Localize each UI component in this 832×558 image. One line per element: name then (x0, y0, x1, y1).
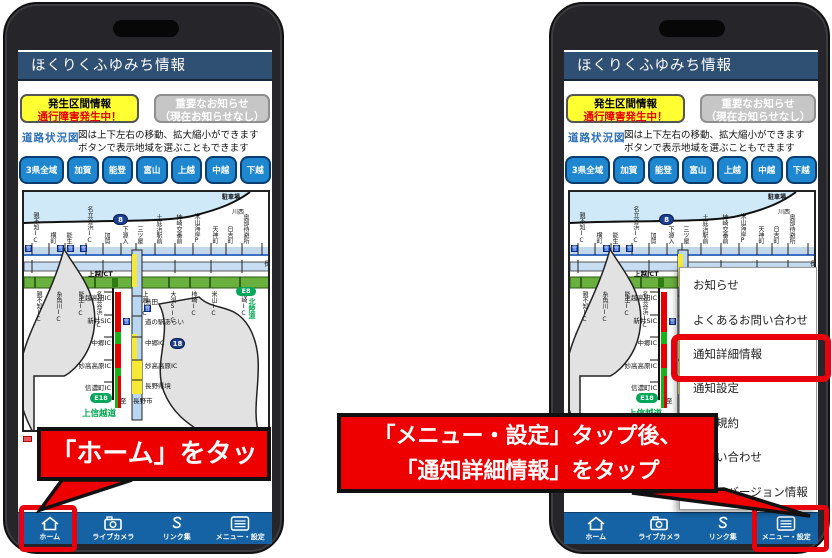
map-station-label: 名立谷浜IC (632, 206, 638, 244)
chain-control-icon: 雪 (613, 245, 620, 252)
map-station-label: 米山海岸P (739, 213, 745, 244)
region-button[interactable]: 上越 (171, 156, 202, 184)
map-station-label: 日吉町 (226, 226, 232, 244)
nav-home-label: ホーム (585, 532, 606, 542)
region-button[interactable]: 3県全域 (19, 156, 64, 184)
phone-speaker (113, 20, 179, 37)
map-label-joetsu-jct: 上越JCT (634, 271, 659, 278)
map-station-label: 加賀 (649, 232, 655, 244)
e18-badge: E18 (90, 393, 112, 403)
map-label-parking: 駐車場 (768, 195, 786, 201)
nav-live-camera[interactable]: ライブカメラ (82, 513, 146, 544)
map-station-label: 三ツ屋 (682, 226, 688, 244)
map-label-parking: 駐車場 (222, 195, 240, 201)
chain-control-icon: 雪 (123, 318, 130, 325)
map-ic-label: 糸魚川IC (55, 291, 61, 323)
map-station-label: 下源入 (121, 226, 127, 244)
incident-line2: 通行障害発生中！ (568, 111, 683, 124)
map-ic-label: 柿崎IC (190, 291, 196, 317)
app-title-bar: ほくりくふゆみち情報 (18, 52, 272, 81)
map-station-label: 天神町 (757, 226, 763, 244)
home-icon (586, 516, 606, 531)
left-callout-tail (28, 478, 148, 514)
map-road-label: 中郷IC (92, 337, 111, 347)
map-station-label: 能生 (65, 232, 71, 244)
nav-links-label: リンク集 (163, 532, 191, 542)
map-road-label: 妙高高原IC (79, 360, 111, 370)
map-station-label: 三ツ屋 (136, 226, 142, 244)
road-map-description: 図は上下左右の移動、拡大縮小ができます ボタンで表示地域を選ぶこともできます (78, 129, 272, 155)
nav-home[interactable]: ホーム (564, 513, 628, 544)
important-notice-button[interactable]: 重要なお知らせ （現在お知らせなし） (700, 94, 816, 123)
map-station-label: 奥部待避所 (242, 214, 248, 244)
map-road-label: 新井SIC (87, 315, 111, 325)
map-road-label: 上越高田IC (79, 292, 111, 302)
nav-live-camera-label: ライブカメラ (92, 532, 134, 542)
map-road-label: 信濃町IC (631, 382, 657, 392)
alert-button-row: 発生区間情報 通行障害発生中！ 重要なお知らせ （現在お知らせなし） (564, 94, 818, 123)
incident-info-button[interactable]: 発生区間情報 通行障害発生中！ (20, 94, 139, 123)
home-tap-callout: 「ホーム」をタップ (37, 427, 271, 481)
map-station-label: 土底浜駅前 (155, 214, 161, 244)
map-road-label: 信濃町IC (85, 382, 111, 392)
camera-icon (103, 516, 123, 531)
important-notice-button[interactable]: 重要なお知らせ （現在お知らせなし） (154, 94, 270, 123)
chain-control-icon: 雪 (571, 245, 578, 252)
map-ic-label: 米山IC (210, 291, 216, 317)
map-station-label: 日吉町 (772, 226, 778, 244)
road-map-desc-line1: 図は上下左右の移動、拡大縮小ができます (624, 130, 805, 141)
map-road-label: 中郷IC (145, 337, 164, 347)
region-button[interactable]: 加賀 (67, 156, 98, 184)
map-station-label: 土底浜駅前 (701, 214, 707, 244)
map-station-label: 横町 (595, 232, 601, 244)
notification-detail-highlight-rect (671, 334, 831, 382)
chain-control-icon: 雪 (67, 245, 74, 252)
app-title-bar: ほくりくふゆみち情報 (564, 52, 818, 81)
chain-control-icon: 雪 (144, 305, 151, 312)
legend-closed-swatch (23, 436, 32, 442)
map-station-label: 柿崎交番前 (721, 214, 727, 244)
region-button[interactable]: 能登 (648, 156, 679, 184)
road-map-description: 図は上下左右の移動、拡大縮小ができます ボタンで表示地域を選ぶこともできます (624, 129, 818, 155)
road-map-caption: 道路状況図 図は上下左右の移動、拡大縮小ができます ボタンで表示地域を選ぶことも… (568, 129, 818, 155)
incident-line1: 発生区間情報 (568, 98, 683, 111)
app-title: ほくりくふゆみち情報 (31, 58, 186, 74)
map-road-label: 上越高田IC (625, 292, 657, 302)
road-map-desc-line2: ボタンで表示地域を選ぶこともできます (78, 143, 249, 154)
map-road-label: 新井SIC (633, 315, 657, 325)
region-button[interactable]: 加賀 (613, 156, 644, 184)
map-station-label: 親不知IC (32, 212, 38, 244)
menu-settings-callout: 「メニュー・設定」タップ後、 「通知詳細情報」をタップ (337, 413, 718, 493)
region-button[interactable]: 中越 (751, 156, 782, 184)
app-title: ほくりくふゆみち情報 (577, 58, 732, 74)
region-button[interactable]: 富山 (682, 156, 713, 184)
region-button[interactable]: 上越 (717, 156, 748, 184)
map-station-label: 横町 (49, 232, 55, 244)
region-button[interactable]: 能登 (102, 156, 133, 184)
route8-badge: 8 (113, 214, 128, 225)
notice-line2: （現在お知らせなし） (702, 111, 814, 124)
map-station-label: 親不知IC (578, 212, 584, 244)
menu-icon (230, 516, 250, 531)
chain-control-icon: 雪 (57, 245, 64, 252)
phone-speaker (659, 20, 725, 37)
region-button[interactable]: 中越 (205, 156, 236, 184)
chain-control-icon: 雪 (603, 245, 610, 252)
chain-control-icon: 雪 (669, 318, 676, 325)
map-station-label: 加賀 (103, 232, 109, 244)
map-road-label: 長野県境 (145, 380, 171, 390)
map-station-label: 柿崎交番前 (175, 214, 181, 244)
region-button-row: 3県全域加賀能登富山上越中越下越 (19, 156, 271, 184)
route8-badge: 8 (659, 214, 674, 225)
road-map-desc-line2: ボタンで表示地域を選ぶこともできます (624, 143, 795, 154)
e8-badge: E8 (236, 287, 256, 296)
map-label-joetsu-jct: 上越JCT (88, 271, 113, 278)
map-road-label: 妙高高原IC (625, 360, 657, 370)
e18-badge: E18 (636, 393, 658, 403)
incident-line1: 発生区間情報 (22, 98, 137, 111)
notice-line2: （現在お知らせなし） (156, 111, 268, 124)
menu-settings-callout-line2: 「通知詳細情報」をタップ (341, 454, 714, 489)
map-station-label: 天神町 (211, 226, 217, 244)
chain-control-icon: 雪 (80, 245, 87, 252)
map-label-hokurikudo: 北陸道 (248, 298, 255, 319)
nav-live-camera-label: ライブカメラ (638, 532, 680, 542)
region-button[interactable]: 下越 (786, 156, 817, 184)
map-road-label: 道の駅あらい (145, 316, 184, 326)
road-status-map[interactable]: 駐車場 川西 長 上越JCT 親不知IC横町能生名立谷浜IC加賀下源入三ツ屋土底… (22, 190, 270, 432)
map-ic-label: 親不知IC (35, 291, 41, 323)
chain-control-icon: 雪 (626, 245, 633, 252)
menu-item[interactable]: お知らせ (680, 268, 816, 302)
notice-line1: 重要なお知らせ (156, 98, 268, 111)
map-label-nagaoka: 長 (264, 262, 270, 268)
map-station-label: 下源入 (667, 226, 673, 244)
region-button[interactable]: 下越 (240, 156, 271, 184)
incident-info-button[interactable]: 発生区間情報 通行障害発生中！ (566, 94, 685, 123)
road-map-title: 道路状況図 (22, 130, 80, 145)
road-map-title: 道路状況図 (568, 130, 626, 145)
menu-item[interactable]: よくあるお問い合わせ (680, 302, 816, 336)
screenshot-canvas: ほくりくふゆみち情報 発生区間情報 通行障害発生中！ 重要なお知らせ （現在お知… (0, 0, 832, 558)
map-ic-label: 親不知IC (581, 291, 587, 323)
link-icon (167, 516, 187, 531)
chain-control-icon: 雪 (25, 245, 32, 252)
region-button[interactable]: 富山 (136, 156, 167, 184)
notice-line1: 重要なお知らせ (702, 98, 814, 111)
alert-button-row: 発生区間情報 通行障害発生中！ 重要なお知らせ （現在お知らせなし） (18, 94, 272, 123)
nav-links-label: リンク集 (709, 532, 737, 542)
map-station-label: 奥部待避所 (788, 214, 794, 244)
map-station-label: 名立谷浜IC (86, 206, 92, 244)
map-station-label: 米山海岸P (193, 213, 199, 244)
nav-menu-settings-label: メニュー・設定 (216, 532, 265, 542)
map-station-label: 能生 (611, 232, 617, 244)
nav-menu-settings[interactable]: メニュー・設定 (209, 513, 273, 544)
map-road-label: 中郷IC (638, 337, 657, 347)
road-map-desc-line1: 図は上下左右の移動、拡大縮小ができます (78, 130, 259, 141)
region-button[interactable]: 3県全域 (565, 156, 610, 184)
map-ic-label: 糸魚川IC (601, 291, 607, 323)
incident-line2: 通行障害発生中！ (22, 111, 137, 124)
road-map-caption: 道路状況図 図は上下左右の移動、拡大縮小ができます ボタンで表示地域を選ぶことも… (22, 129, 272, 155)
map-label-shinetsudo: 上信越道 (82, 407, 116, 419)
menu-settings-callout-line1: 「メニュー・設定」タップ後、 (341, 419, 714, 454)
region-button-row: 3県全域加賀能登富山上越中越下越 (565, 156, 817, 184)
map-road-label: 妙高高原IC (145, 360, 177, 370)
route18-badge: 18 (170, 338, 185, 349)
map-label-to-nagano: 至 長野市 (120, 395, 153, 405)
